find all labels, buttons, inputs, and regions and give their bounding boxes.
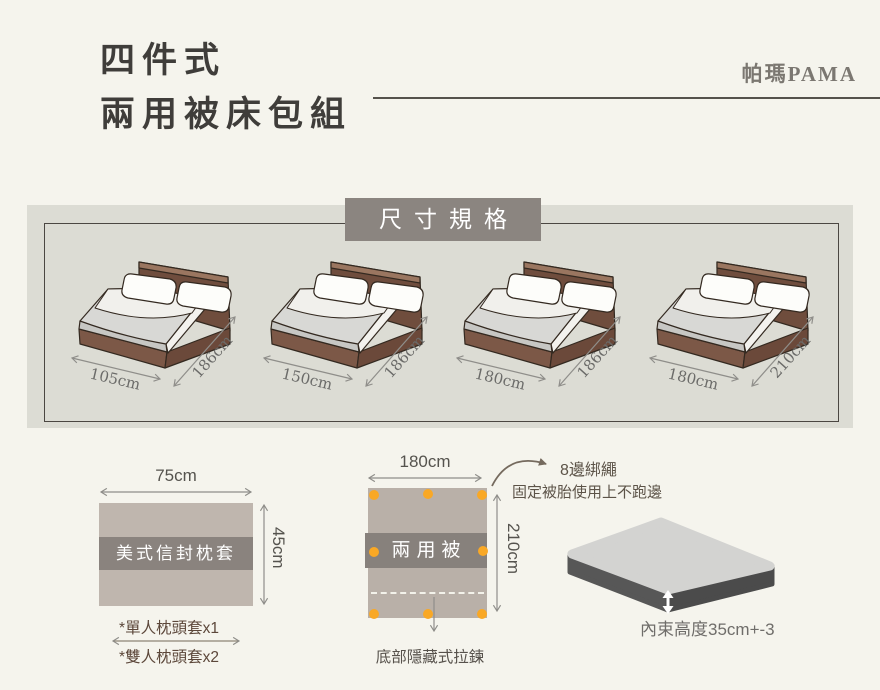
bed-width-label: 150cm — [280, 365, 334, 394]
product-infographic: 四件式 兩用被床包組 帕瑪PAMA 尺寸規格 — [0, 0, 880, 690]
quilt-band-label: 兩用被 — [365, 533, 487, 568]
bed-illustration: 105cm 186cm — [52, 247, 252, 397]
bed-width-label: 180cm — [473, 365, 527, 394]
brand-logo: 帕瑪PAMA — [742, 58, 857, 88]
bed-illustration: 150cm 186cm — [244, 247, 444, 397]
bed-figure: 180cm 210cm — [630, 247, 830, 397]
tie-rope-desc: 固定被胎使用上不跑邊 — [512, 481, 662, 502]
quilt-width-label: 180cm — [368, 452, 482, 472]
tie-dot — [369, 490, 379, 500]
page-title: 四件式 兩用被床包組 — [100, 34, 352, 142]
bed-illustration: 180cm 210cm — [630, 247, 830, 397]
hidden-zipper-line — [371, 592, 484, 594]
tie-dot — [423, 489, 433, 499]
mattress-illustration — [556, 514, 788, 616]
pillowcase-band-label: 美式信封枕套 — [99, 537, 253, 570]
svg-defs — [0, 0, 1, 1]
spec-badge: 尺寸規格 — [345, 198, 541, 241]
bed-figure: 180cm 186cm — [437, 247, 637, 397]
tie-dot — [369, 547, 379, 557]
bed-illustration: 180cm 186cm — [437, 247, 637, 397]
bed-width-label: 105cm — [88, 365, 142, 394]
tie-dot — [477, 609, 487, 619]
tie-dot — [477, 490, 487, 500]
bed-figure: 150cm 186cm — [244, 247, 444, 397]
tie-dot — [423, 609, 433, 619]
header-divider — [373, 97, 880, 99]
pillowcase-height-label: 45cm — [268, 527, 288, 569]
note-single-pillowcase: *單人枕頭套x1 — [92, 616, 246, 638]
zipper-note: 底部隱藏式拉鍊 — [358, 645, 502, 667]
page-title-line2: 兩用被床包組 — [100, 88, 352, 142]
tie-rope-title: 8邊綁繩 — [560, 456, 617, 480]
bed-figure: 105cm 186cm — [52, 247, 252, 397]
tie-dot — [478, 546, 488, 556]
mattress-depth-note: 內束高度35cm+-3 — [640, 615, 775, 640]
bed-width-label: 180cm — [666, 365, 720, 394]
pillowcase-width-label: 75cm — [99, 466, 253, 486]
tie-dot — [369, 609, 379, 619]
page-title-line1: 四件式 — [100, 34, 352, 88]
quilt-height-label: 210cm — [503, 523, 523, 574]
note-double-pillowcase: *雙人枕頭套x2 — [92, 645, 246, 667]
